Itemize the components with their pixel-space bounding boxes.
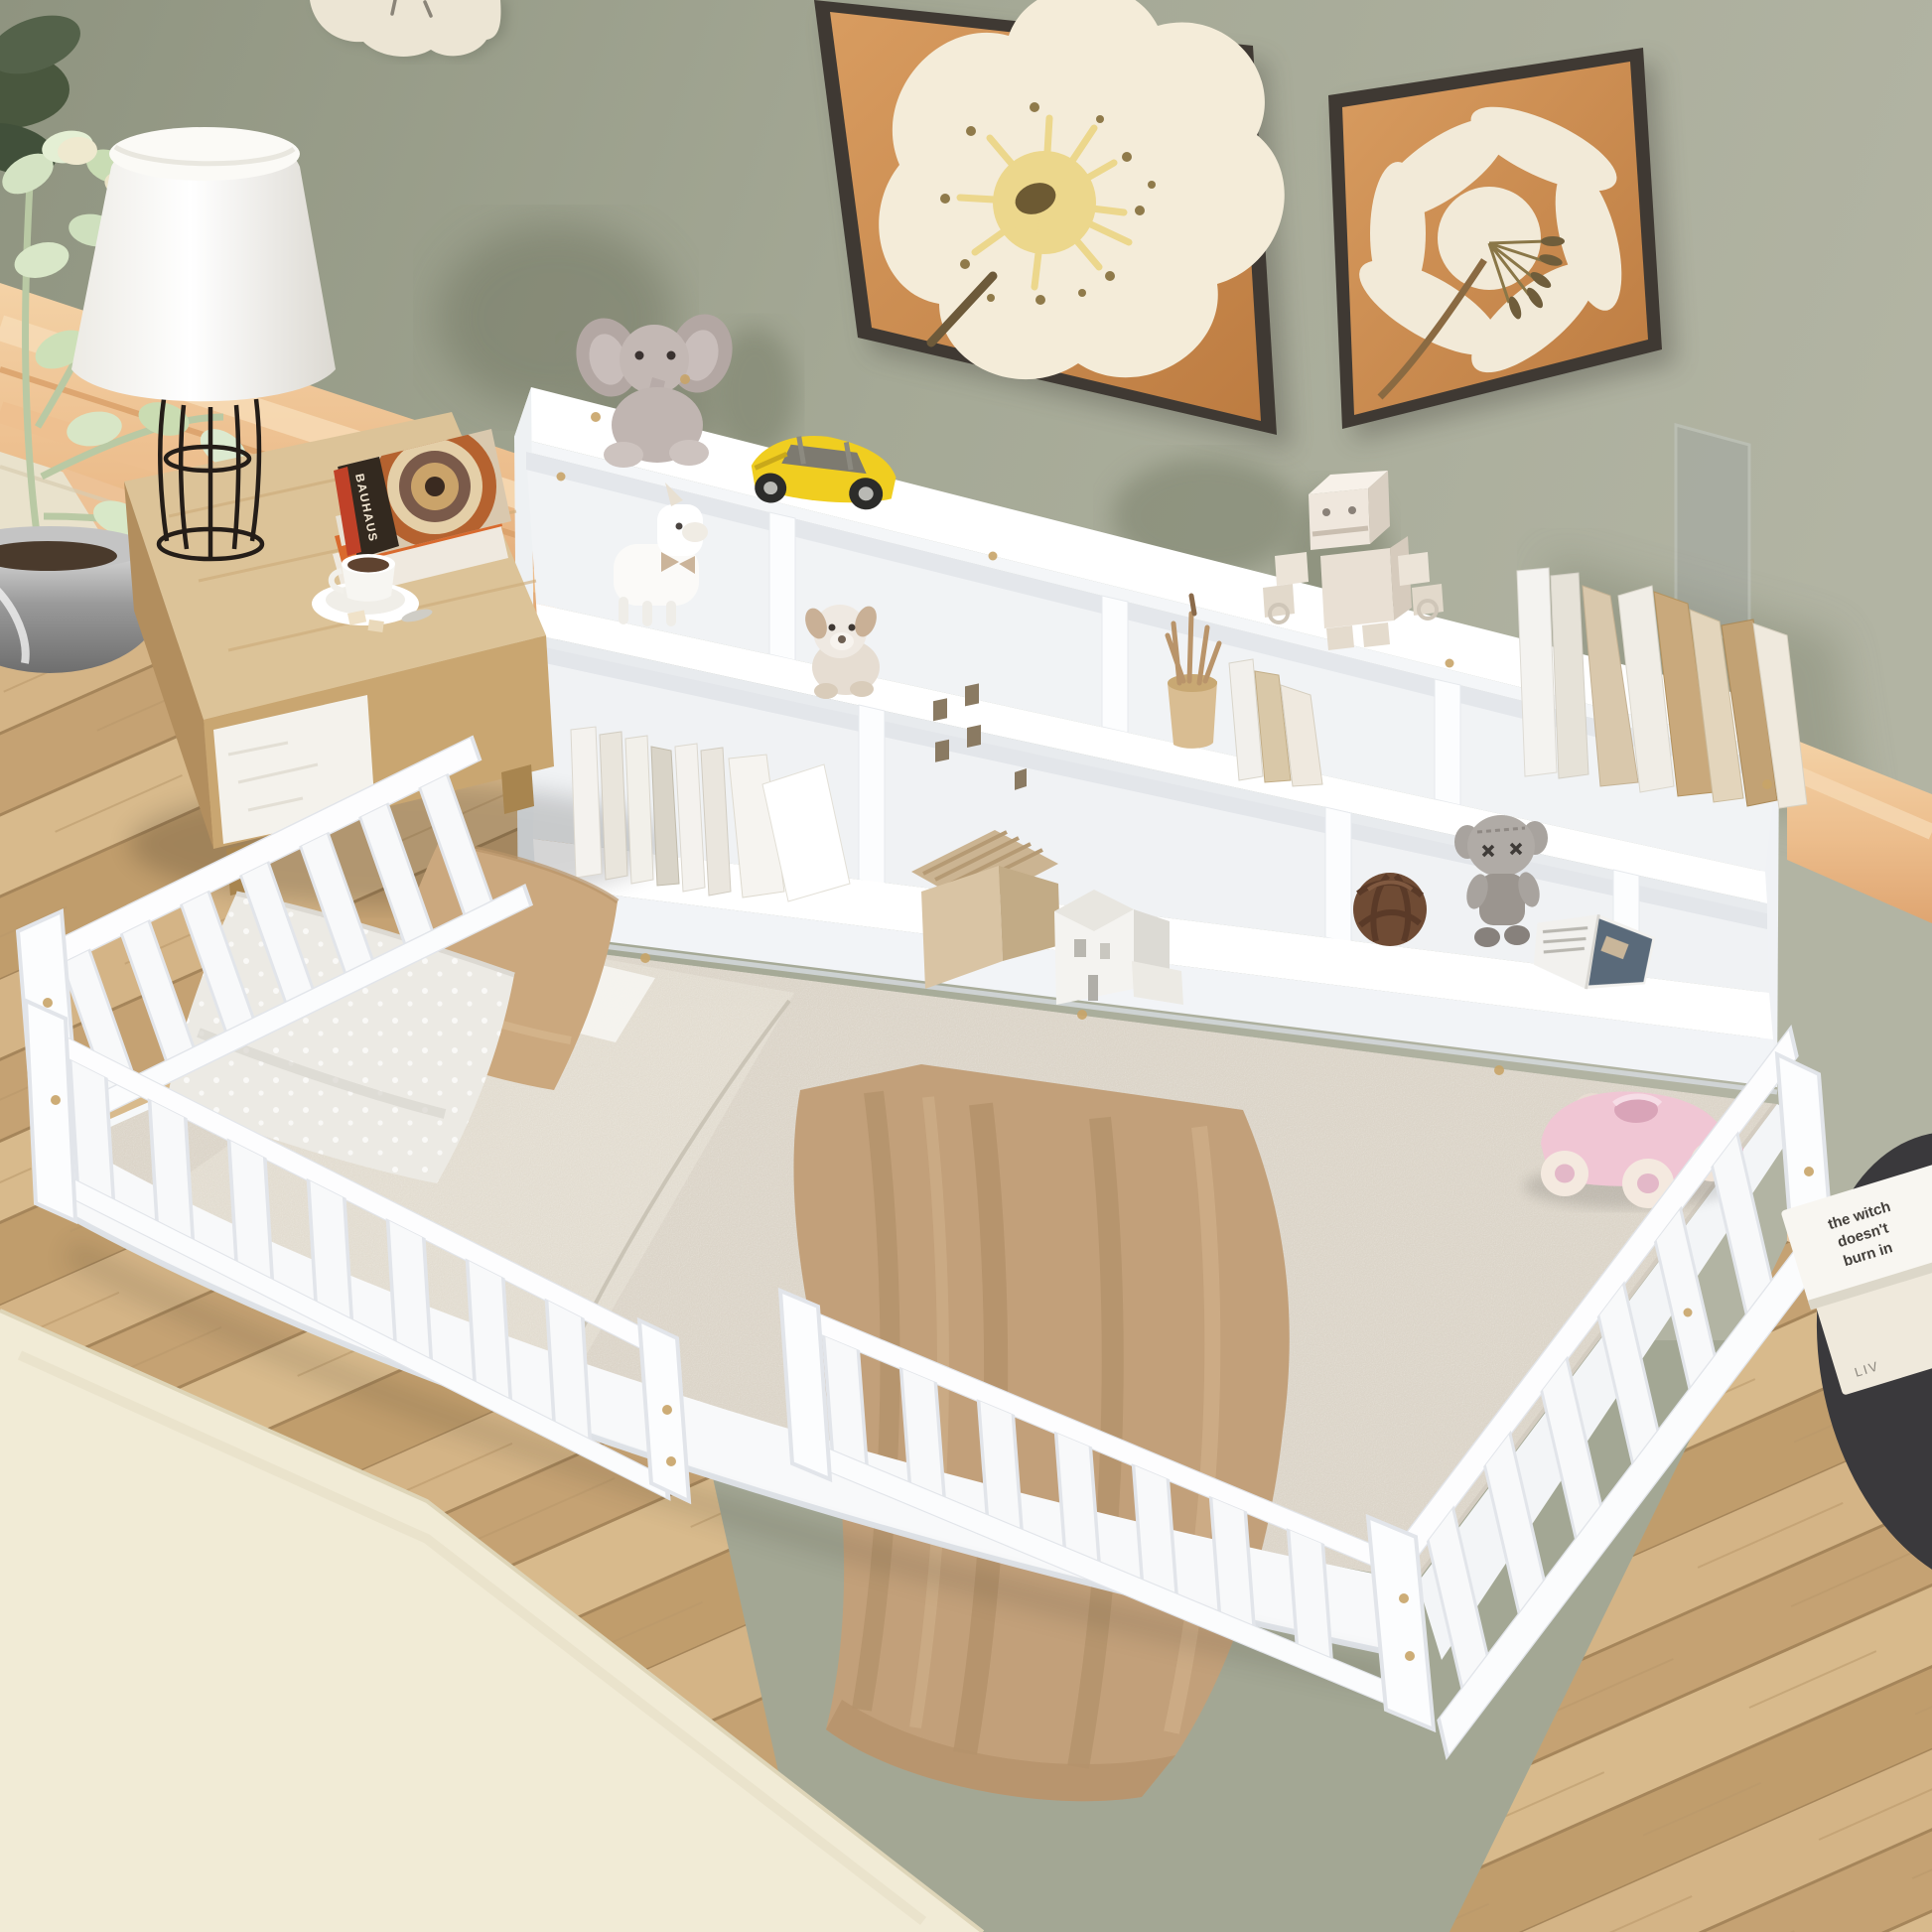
- elephant-foot-right: [669, 440, 709, 466]
- nightstand-leg-2: [501, 764, 534, 814]
- bedroom-product-photo: BAUHAUS BAUHAUS: [0, 0, 1932, 1932]
- elephant-foot-left: [604, 442, 643, 468]
- figure-foot-right: [1504, 925, 1530, 945]
- white-book-1: [571, 727, 602, 878]
- sugar-cube-2: [367, 620, 383, 632]
- blanket: [793, 1064, 1289, 1801]
- robot-eye-1: [1322, 508, 1330, 516]
- front-rail-post-left: [26, 1001, 75, 1221]
- robot-eye-2: [1348, 506, 1356, 514]
- white-house-door: [1088, 975, 1098, 1001]
- robot-arm-right-1: [1398, 552, 1430, 586]
- elephant-eye-left: [635, 351, 644, 360]
- robot-leg-right: [1362, 622, 1390, 647]
- robot-arm-left-1: [1275, 552, 1309, 586]
- pink-hub-2: [1637, 1173, 1659, 1193]
- pencil-tip: [1191, 596, 1194, 614]
- white-house-window-1: [1074, 939, 1086, 957]
- puppy-paw-left: [814, 683, 838, 699]
- figure-head: [1467, 815, 1535, 877]
- unicorn-snout: [682, 522, 708, 542]
- robot-arm-left-2: [1263, 584, 1295, 618]
- puppy-eye-left: [829, 624, 836, 631]
- puppy-paw-right: [850, 681, 874, 697]
- coffee: [347, 558, 389, 573]
- pink-hub-1: [1555, 1165, 1575, 1183]
- row2-divider-2: [1325, 807, 1351, 943]
- robot-leg-left: [1326, 625, 1354, 650]
- knot-ball: [1353, 873, 1427, 946]
- row1-divider-1: [769, 512, 795, 660]
- puppy-eye-right: [849, 624, 856, 631]
- robot-head: [1309, 488, 1370, 550]
- white-house-window-2: [1100, 943, 1110, 959]
- row1-divider-2: [1102, 596, 1128, 733]
- scene: BAUHAUS BAUHAUS: [0, 0, 1932, 1932]
- robot-body: [1320, 548, 1394, 628]
- figure-foot-left: [1474, 927, 1500, 947]
- unicorn-eye: [676, 523, 683, 530]
- puppy-nose: [838, 635, 846, 643]
- pencil-cup-rim: [1168, 674, 1217, 692]
- row1-divider-3: [1435, 679, 1460, 805]
- row2-divider-1: [859, 705, 885, 886]
- elephant-eye-right: [667, 351, 676, 360]
